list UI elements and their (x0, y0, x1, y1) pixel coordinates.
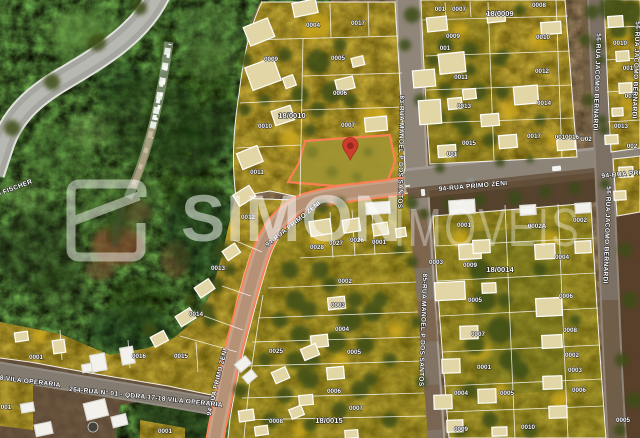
svg-text:0008: 0008 (269, 418, 284, 425)
svg-text:0009: 0009 (454, 426, 469, 433)
svg-text:0013: 0013 (614, 123, 629, 130)
svg-text:0017: 0017 (527, 133, 542, 140)
svg-text:0009: 0009 (463, 262, 478, 269)
svg-text:18/0009: 18/0009 (486, 9, 513, 18)
svg-text:0014: 0014 (537, 100, 552, 107)
svg-text:0010: 0010 (258, 123, 273, 130)
svg-text:0001: 0001 (477, 364, 492, 371)
svg-text:0014: 0014 (189, 311, 204, 318)
svg-text:U02: U02 (580, 136, 592, 143)
svg-text:SIMON: SIMON (181, 181, 402, 255)
svg-text:IMÓVEIS: IMÓVEIS (394, 198, 581, 259)
svg-text:0009: 0009 (446, 33, 461, 40)
svg-text:0006: 0006 (572, 387, 587, 394)
svg-text:0003: 0003 (568, 367, 583, 374)
svg-text:0008: 0008 (563, 327, 578, 334)
svg-text:0010: 0010 (613, 40, 628, 47)
svg-text:0005: 0005 (500, 390, 515, 397)
svg-text:0007: 0007 (471, 331, 486, 338)
svg-text:001: 001 (1, 404, 12, 411)
svg-text:0008: 0008 (532, 2, 547, 9)
svg-text:0004: 0004 (306, 22, 321, 29)
svg-text:0001: 0001 (29, 354, 44, 361)
svg-text:0006: 0006 (333, 90, 348, 97)
svg-text:0006: 0006 (327, 388, 342, 395)
svg-text:0015: 0015 (462, 140, 477, 147)
svg-text:0003: 0003 (331, 302, 346, 309)
svg-text:18/0014: 18/0014 (486, 265, 514, 274)
svg-text:0010: 0010 (536, 34, 551, 41)
svg-text:0005: 0005 (616, 417, 631, 424)
svg-text:001: 001 (447, 151, 458, 158)
svg-text:0005: 0005 (331, 55, 346, 62)
svg-text:0025: 0025 (269, 348, 284, 355)
svg-text:0016: 0016 (565, 134, 580, 141)
svg-text:0015: 0015 (174, 353, 189, 360)
svg-text:0004: 0004 (335, 326, 350, 333)
svg-text:0007: 0007 (341, 122, 356, 129)
svg-text:0010: 0010 (521, 424, 536, 431)
svg-text:002: 002 (627, 143, 638, 150)
svg-text:0011: 0011 (454, 74, 468, 81)
svg-text:001: 001 (440, 45, 451, 52)
svg-text:0013: 0013 (211, 265, 226, 272)
svg-text:18/0015: 18/0015 (315, 416, 343, 425)
svg-text:0007: 0007 (452, 6, 467, 13)
svg-text:0017: 0017 (351, 20, 366, 27)
svg-text:0013: 0013 (457, 103, 472, 110)
svg-text:18/0010: 18/0010 (278, 111, 305, 120)
svg-text:0004: 0004 (454, 390, 469, 397)
svg-text:0005: 0005 (468, 297, 483, 304)
svg-text:001: 001 (435, 6, 446, 13)
svg-text:0009: 0009 (264, 56, 279, 63)
svg-text:0016: 0016 (132, 353, 147, 360)
svg-text:0007: 0007 (349, 405, 364, 412)
svg-text:0001: 0001 (158, 428, 173, 435)
svg-text:0012: 0012 (535, 68, 550, 75)
svg-text:0005: 0005 (347, 349, 362, 356)
svg-text:0011: 0011 (250, 169, 264, 176)
svg-text:0003: 0003 (429, 259, 444, 266)
svg-text:0002: 0002 (338, 278, 353, 285)
svg-text:0006: 0006 (559, 293, 574, 300)
svg-text:0002: 0002 (565, 352, 580, 359)
